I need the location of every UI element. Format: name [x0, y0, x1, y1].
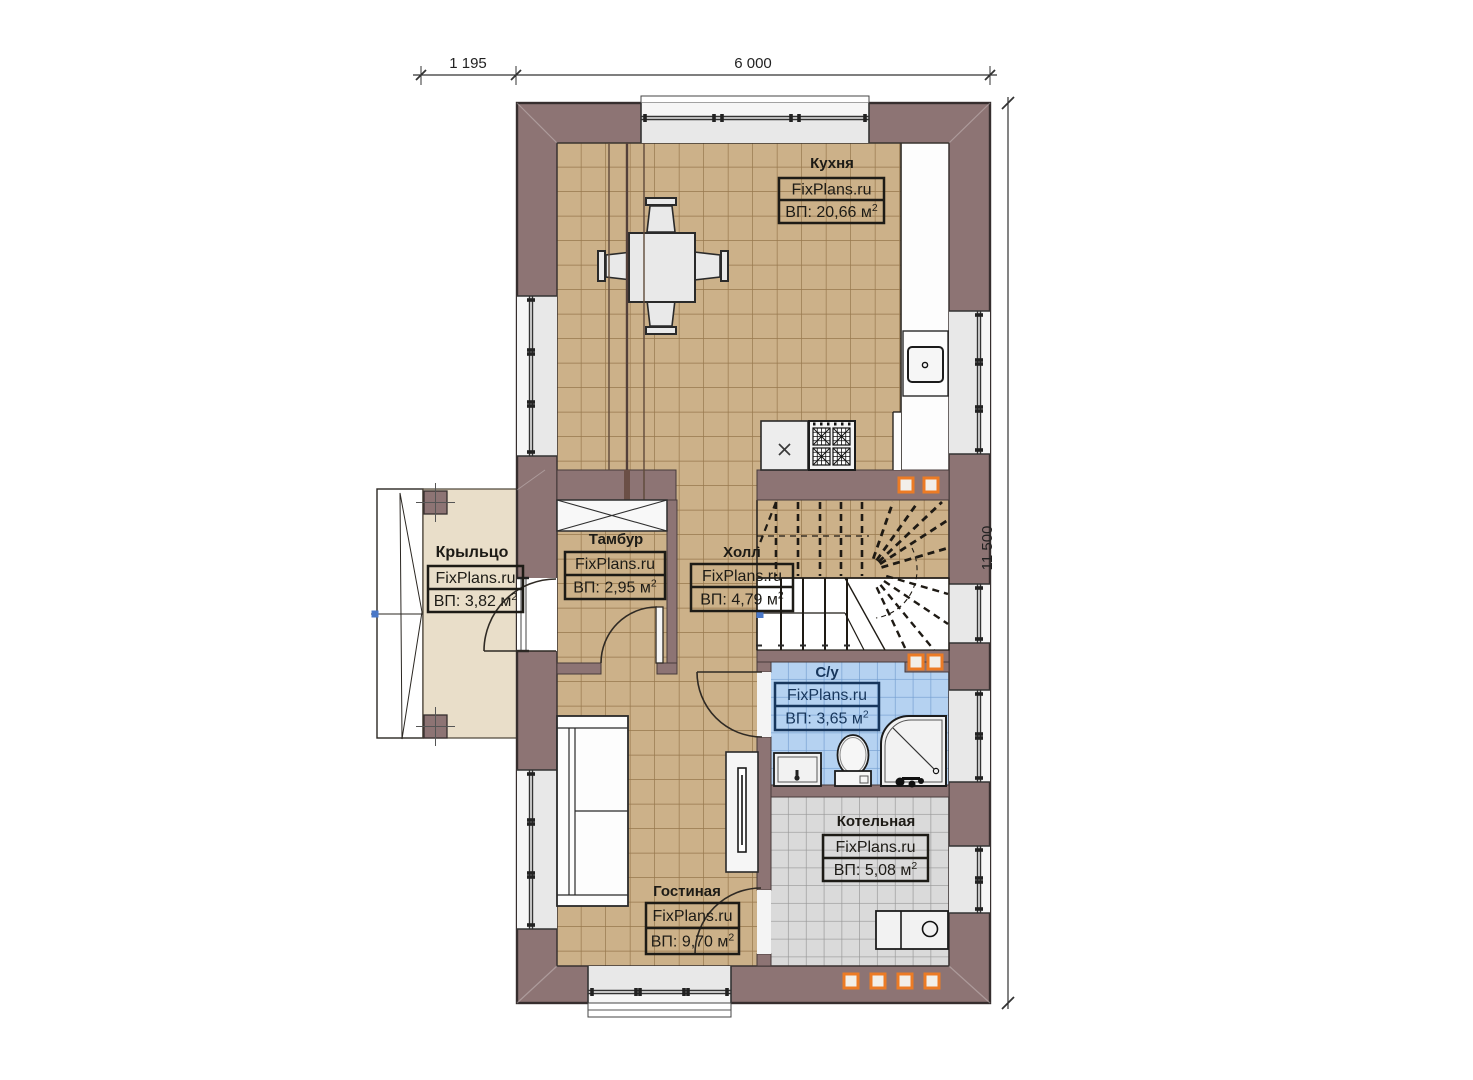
svg-text:FixPlans.ru: FixPlans.ru [835, 839, 915, 856]
svg-text:ВП: 20,66 м2: ВП: 20,66 м2 [785, 202, 878, 221]
svg-text:ВП: 4,79 м2: ВП: 4,79 м2 [700, 590, 784, 609]
svg-text:Гостиная: Гостиная [653, 883, 721, 900]
svg-text:ВП: 9,70 м2: ВП: 9,70 м2 [651, 932, 735, 951]
svg-text:Холл: Холл [723, 544, 761, 561]
svg-text:1 195: 1 195 [449, 55, 487, 72]
svg-text:Кухня: Кухня [810, 155, 854, 172]
svg-text:Котельная: Котельная [837, 813, 916, 830]
svg-text:Тамбур: Тамбур [589, 531, 643, 548]
svg-text:ВП: 3,82 м2: ВП: 3,82 м2 [434, 591, 518, 610]
svg-text:FixPlans.ru: FixPlans.ru [575, 556, 655, 573]
svg-text:FixPlans.ru: FixPlans.ru [702, 568, 782, 585]
svg-text:FixPlans.ru: FixPlans.ru [787, 687, 867, 704]
svg-text:ВП: 3,65 м2: ВП: 3,65 м2 [785, 709, 869, 728]
svg-text:ВП: 2,95 м2: ВП: 2,95 м2 [573, 578, 657, 597]
svg-text:С/у: С/у [815, 664, 839, 681]
svg-text:FixPlans.ru: FixPlans.ru [791, 182, 871, 199]
svg-text:ВП: 5,08 м2: ВП: 5,08 м2 [834, 860, 918, 879]
svg-text:11 500: 11 500 [979, 526, 996, 571]
svg-text:FixPlans.ru: FixPlans.ru [652, 908, 732, 925]
svg-text:6 000: 6 000 [734, 55, 772, 72]
svg-text:Крыльцо: Крыльцо [436, 544, 509, 561]
svg-text:FixPlans.ru: FixPlans.ru [435, 570, 515, 587]
